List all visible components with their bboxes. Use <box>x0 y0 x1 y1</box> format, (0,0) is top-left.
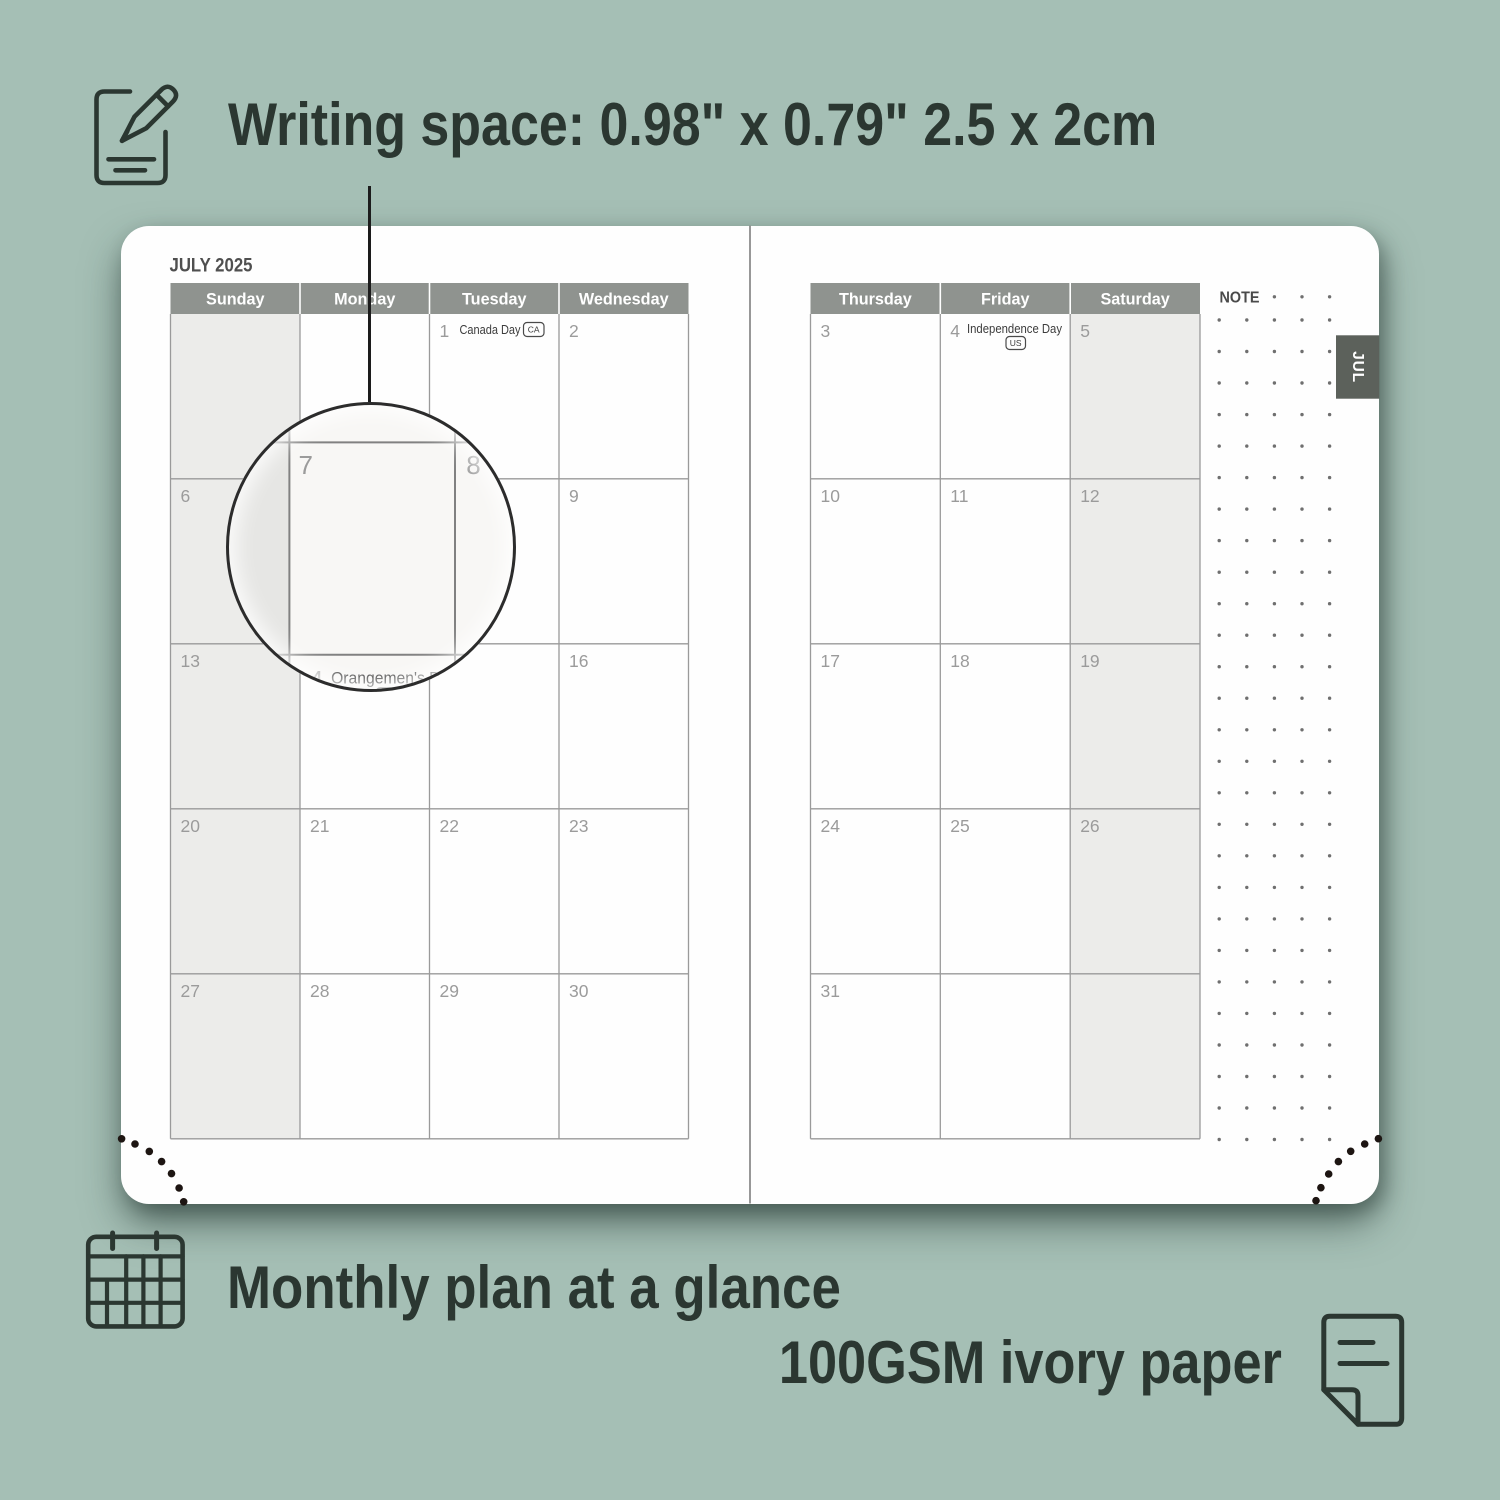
svg-text:13: 13 <box>181 651 200 671</box>
svg-text:NOTE: NOTE <box>1220 290 1260 307</box>
svg-text:6: 6 <box>181 486 191 506</box>
svg-text:11: 11 <box>950 486 968 506</box>
svg-text:Tuesday: Tuesday <box>462 291 526 309</box>
svg-text:16: 16 <box>569 651 588 671</box>
svg-text:Monday: Monday <box>334 291 395 309</box>
svg-text:18: 18 <box>950 651 969 671</box>
svg-text:3: 3 <box>821 321 831 341</box>
svg-text:19: 19 <box>1080 651 1099 671</box>
svg-text:US: US <box>1010 338 1022 348</box>
svg-text:JUL: JUL <box>1349 351 1366 383</box>
svg-text:10: 10 <box>821 486 841 506</box>
svg-text:2: 2 <box>569 321 579 341</box>
svg-text:20: 20 <box>181 816 201 836</box>
svg-text:27: 27 <box>181 981 200 1001</box>
svg-text:Thursday: Thursday <box>839 291 912 309</box>
svg-text:22: 22 <box>440 816 459 836</box>
svg-text:26: 26 <box>1080 816 1099 836</box>
svg-text:25: 25 <box>950 816 969 836</box>
svg-text:4: 4 <box>950 321 960 341</box>
svg-text:Sunday: Sunday <box>206 291 264 309</box>
svg-text:21: 21 <box>310 816 329 836</box>
svg-text:28: 28 <box>310 981 329 1001</box>
svg-text:CA: CA <box>528 325 540 335</box>
svg-text:Friday: Friday <box>981 291 1030 309</box>
svg-text:Canada Day: Canada Day <box>460 322 521 337</box>
svg-text:31: 31 <box>821 981 840 1001</box>
svg-text:30: 30 <box>569 981 589 1001</box>
svg-text:Saturday: Saturday <box>1100 291 1169 309</box>
svg-text:23: 23 <box>569 816 588 836</box>
svg-text:24: 24 <box>821 816 841 836</box>
svg-text:12: 12 <box>1080 486 1099 506</box>
svg-text:5: 5 <box>1080 321 1090 341</box>
svg-text:1: 1 <box>440 321 450 341</box>
svg-text:29: 29 <box>440 981 459 1001</box>
svg-text:JULY 2025: JULY 2025 <box>170 255 253 277</box>
svg-text:Wednesday: Wednesday <box>579 291 669 309</box>
svg-text:Independence Day: Independence Day <box>967 321 1062 336</box>
svg-text:9: 9 <box>569 486 579 506</box>
svg-text:17: 17 <box>821 651 840 671</box>
